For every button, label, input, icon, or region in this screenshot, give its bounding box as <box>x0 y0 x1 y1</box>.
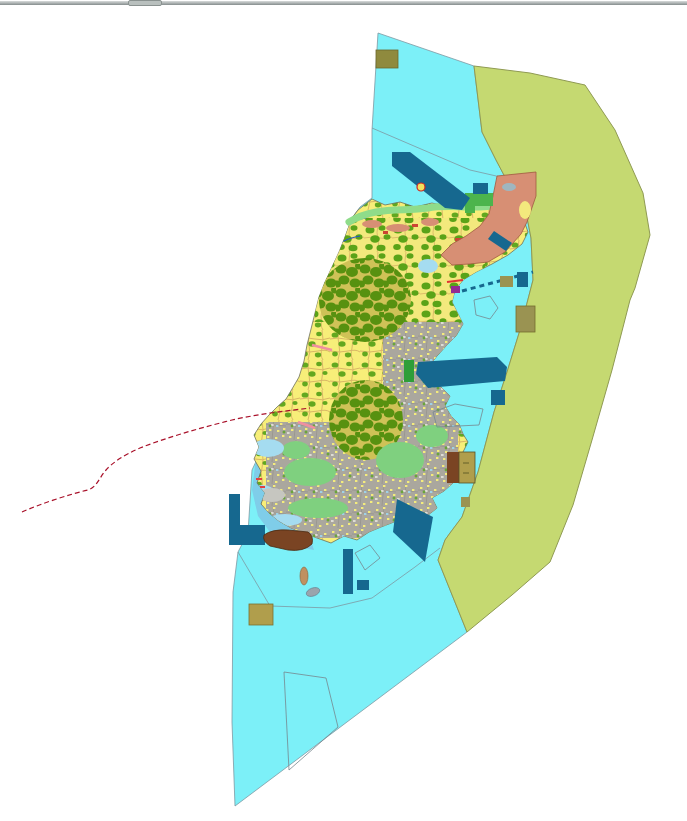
harbor-basin[interactable] <box>473 183 488 194</box>
red-landmark <box>383 231 388 234</box>
harbor-jetty-vertical[interactable] <box>343 549 353 594</box>
harbor-parcel-east[interactable] <box>517 272 528 287</box>
parcel-mark <box>463 462 469 464</box>
inland-water-patch <box>252 439 284 457</box>
green-facility-bar <box>404 360 414 382</box>
khaki-parcel-north[interactable] <box>376 50 398 68</box>
splitter-handle-icon[interactable] <box>128 0 162 6</box>
buoy-mark <box>417 183 425 191</box>
islet-tan <box>300 567 308 585</box>
purple-landmark <box>451 286 460 293</box>
salmon-zone-yellow-patch <box>519 201 531 219</box>
khaki-parcel-coast[interactable] <box>459 452 475 483</box>
harbor-bar-west[interactable] <box>229 525 265 545</box>
meadow-patch <box>416 425 448 447</box>
harbor-square[interactable] <box>357 580 369 590</box>
red-coast-mark <box>260 486 265 488</box>
red-coast-mark <box>256 478 262 480</box>
coastal-salmon-patch <box>362 220 382 228</box>
khaki-parcel-tiny[interactable] <box>461 497 470 507</box>
meadow-patch <box>282 441 310 459</box>
meadow-patch <box>288 498 348 518</box>
khaki-parcel-east[interactable] <box>516 306 535 332</box>
inland-water-patch <box>418 259 438 273</box>
meadow-patch <box>284 458 336 486</box>
khaki-parcel-south[interactable] <box>249 604 273 625</box>
window-splitter[interactable] <box>0 1 687 5</box>
brown-parcel-coast[interactable] <box>447 452 459 483</box>
dense-forest-north <box>319 258 411 342</box>
harbor-basin-small[interactable] <box>491 390 505 405</box>
map-canvas[interactable] <box>0 0 687 821</box>
coastal-salmon-patch <box>421 218 439 226</box>
meadow-patch <box>376 442 424 478</box>
salmon-zone-gray-blob <box>502 183 516 191</box>
harbor-bar-west-arm[interactable] <box>229 494 240 525</box>
red-landmark <box>412 224 418 227</box>
parcel-mark <box>463 472 469 474</box>
khaki-parcel-east-small[interactable] <box>500 276 513 287</box>
app-window <box>0 0 687 821</box>
coastal-salmon-patch <box>386 224 410 232</box>
